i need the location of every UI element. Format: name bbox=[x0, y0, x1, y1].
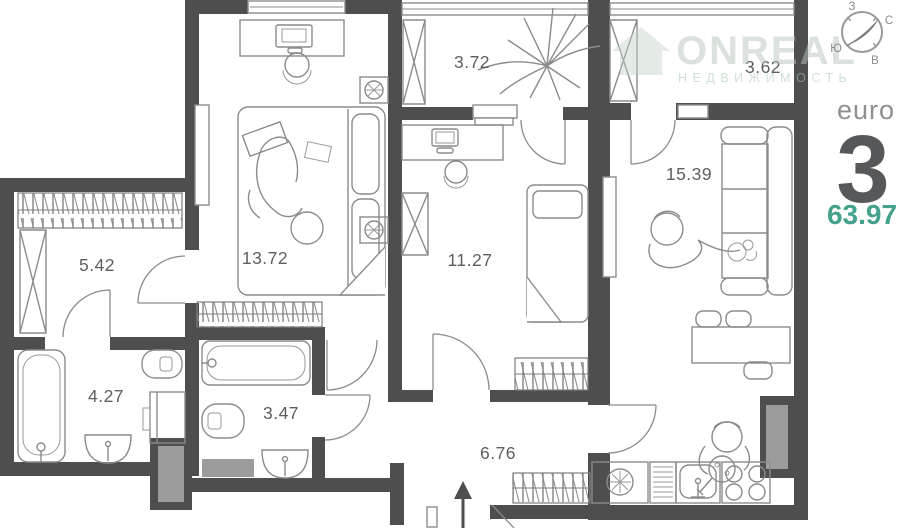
bathroom-sink bbox=[85, 435, 131, 463]
floor-plan-page: 13.72 5.42 4.27 3.47 6.76 11.27 3.72 3.6… bbox=[0, 0, 898, 528]
sofa bbox=[721, 127, 792, 295]
wall-fan-icons bbox=[360, 77, 388, 243]
balcony2-door-window bbox=[678, 105, 708, 118]
compass-south: Ю bbox=[830, 43, 842, 55]
desk-2 bbox=[402, 125, 503, 188]
toilet bbox=[142, 350, 182, 378]
vent-shaft bbox=[158, 446, 184, 502]
living-radiator bbox=[603, 177, 616, 277]
apartment-info: euro 3 63.97 bbox=[827, 95, 897, 230]
person-on-bed-figure bbox=[242, 122, 331, 244]
compass-west: З bbox=[849, 1, 856, 13]
area-label-wardrobe: 5.42 bbox=[79, 255, 115, 275]
bathtub-2 bbox=[202, 341, 310, 385]
watermark-logo: ONREAL НЕДВИЖИМОСТЬ bbox=[612, 27, 857, 85]
bedroom-desk bbox=[240, 20, 344, 84]
area-label-living: 15.39 bbox=[666, 164, 712, 184]
toilet-2 bbox=[202, 404, 244, 438]
compass-east: В bbox=[871, 55, 879, 67]
bathroom-duct bbox=[202, 459, 254, 477]
area-label-bathroom: 4.27 bbox=[88, 386, 124, 406]
person-sitting-figure bbox=[649, 211, 757, 267]
entrance-arrow-icon bbox=[454, 481, 472, 528]
dining-table bbox=[692, 311, 790, 379]
washing-machine bbox=[143, 392, 185, 443]
bedroom-side-window bbox=[195, 105, 209, 205]
bathtub bbox=[18, 350, 65, 462]
dish-rack bbox=[650, 462, 676, 503]
compass-north: С bbox=[885, 15, 893, 27]
vent-shaft-2 bbox=[766, 405, 788, 469]
apartment-total-area: 63.97 bbox=[827, 199, 897, 230]
watermark-tagline: НЕДВИЖИМОСТЬ bbox=[678, 71, 852, 85]
balcony-door-window bbox=[473, 105, 517, 118]
area-label-balcony: 3.72 bbox=[454, 52, 490, 72]
house-icon bbox=[612, 27, 670, 75]
plant bbox=[478, 8, 600, 100]
floor-plan: 13.72 5.42 4.27 3.47 6.76 11.27 3.72 3.6… bbox=[0, 0, 898, 528]
area-label-bedroom: 13.72 bbox=[242, 248, 288, 268]
balcony-window-sill bbox=[475, 118, 513, 125]
single-bed bbox=[527, 185, 588, 322]
area-label-bedroom-2: 11.27 bbox=[448, 250, 493, 270]
area-label-hallway: 6.76 bbox=[480, 443, 516, 463]
area-label-bathroom-2: 3.47 bbox=[263, 403, 299, 423]
entry-sidelight bbox=[427, 507, 437, 527]
bathroom-sink-2 bbox=[262, 450, 308, 478]
snowflake-icon bbox=[609, 471, 631, 493]
kitchen-sink bbox=[676, 462, 720, 503]
person-cooking-figure bbox=[697, 422, 749, 495]
